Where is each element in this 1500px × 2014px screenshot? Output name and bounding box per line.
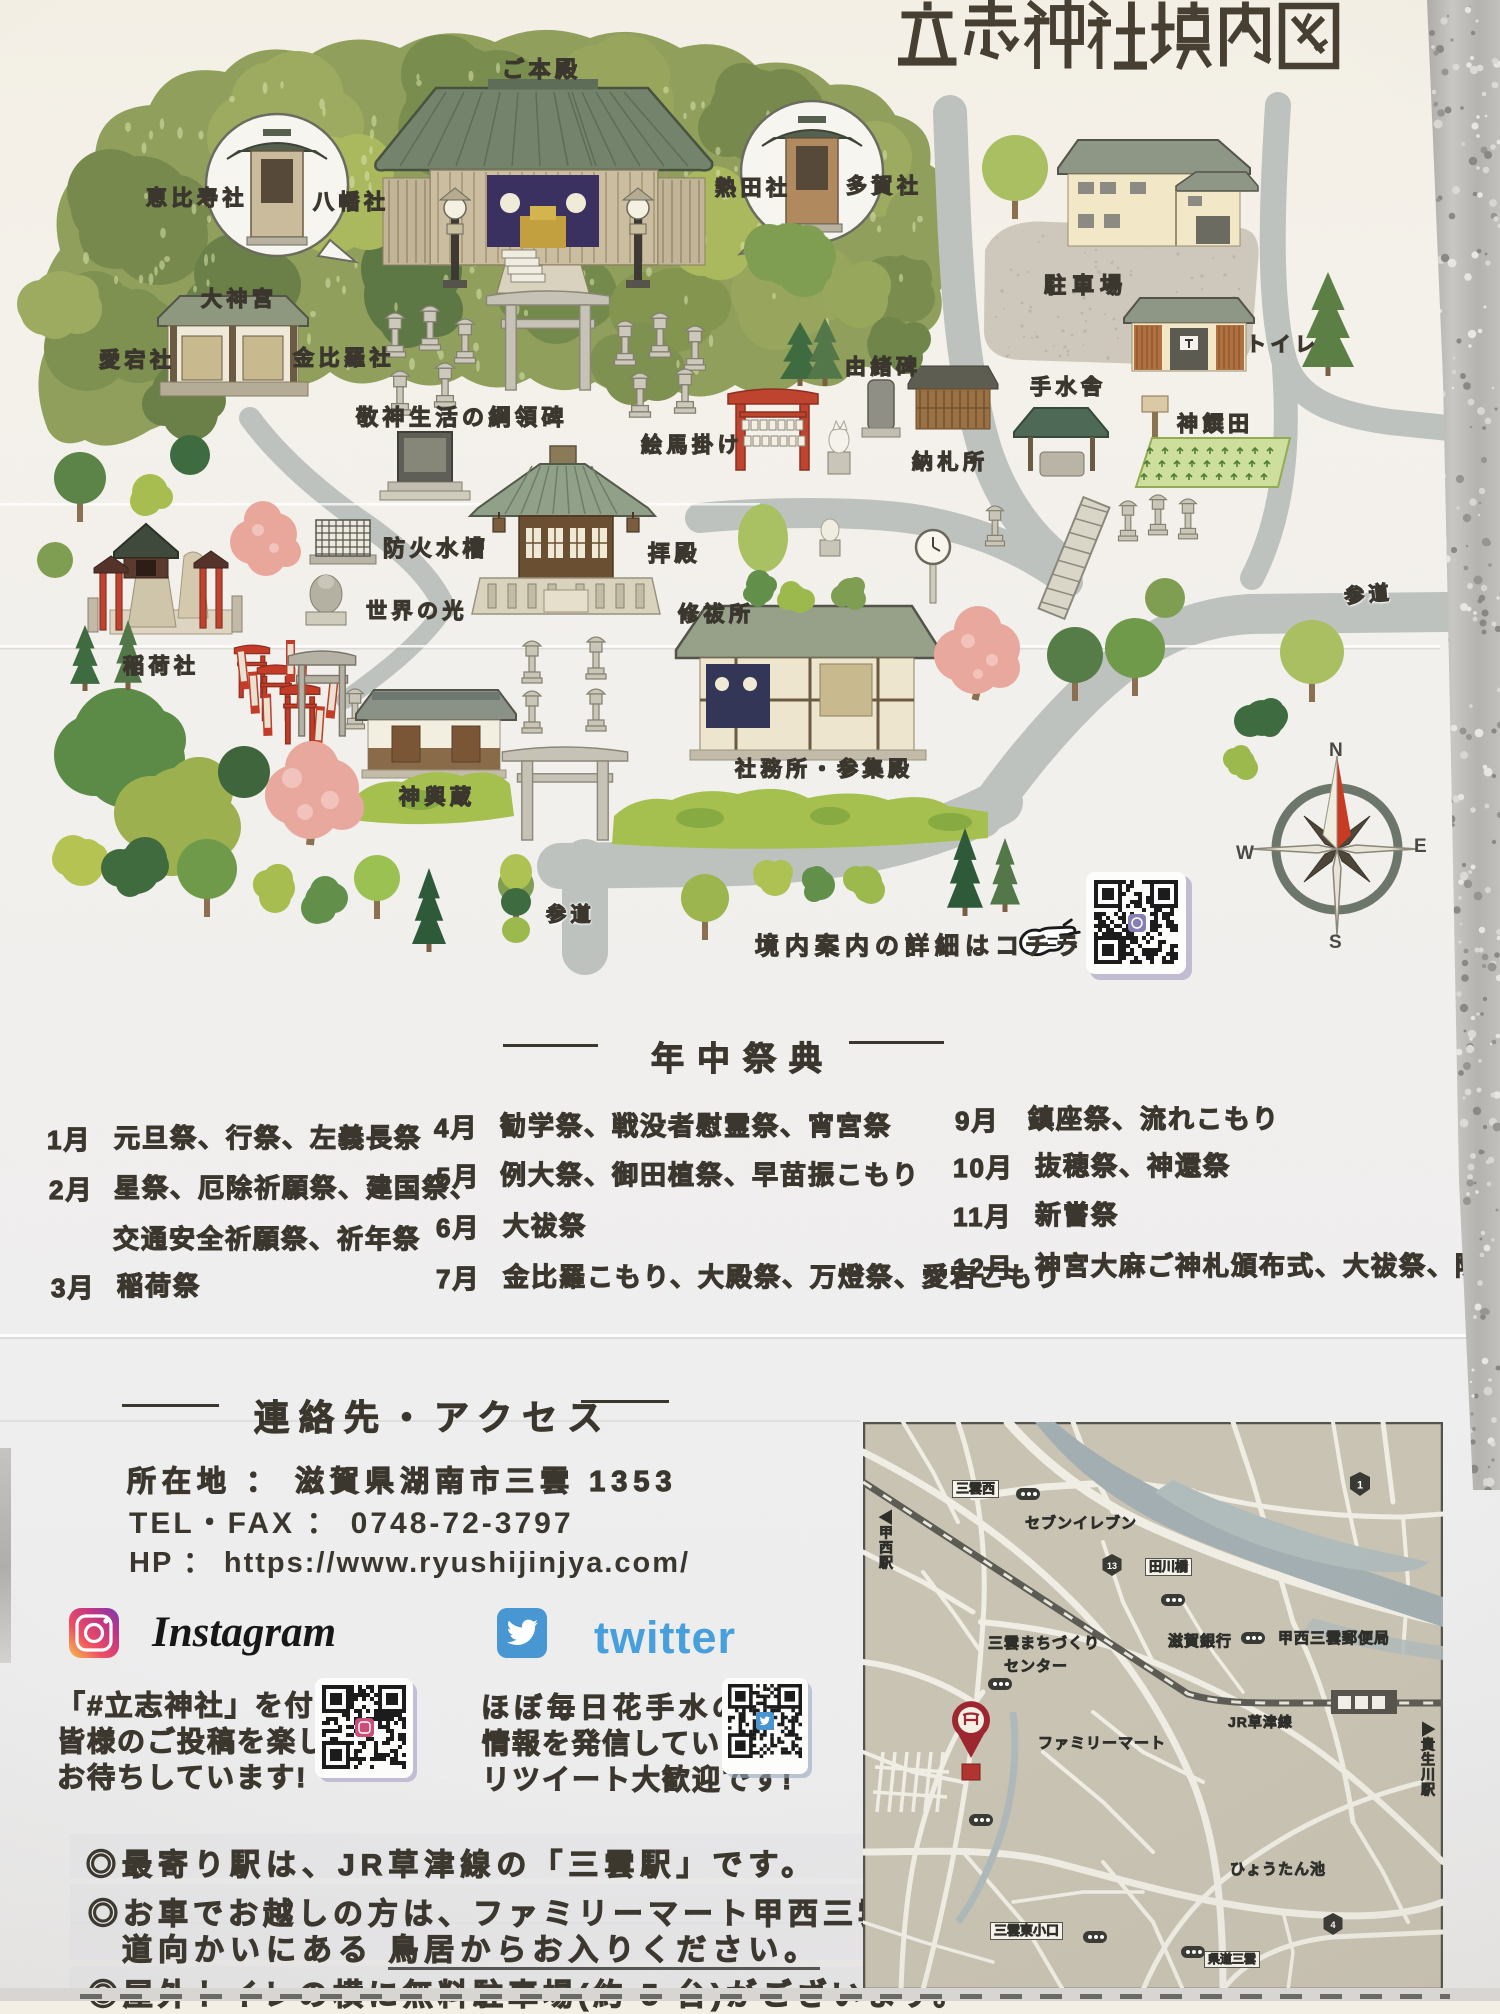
svg-text:4: 4 xyxy=(1330,1920,1335,1930)
svg-text:13: 13 xyxy=(1107,1561,1117,1571)
svg-text:1: 1 xyxy=(1357,1480,1363,1492)
